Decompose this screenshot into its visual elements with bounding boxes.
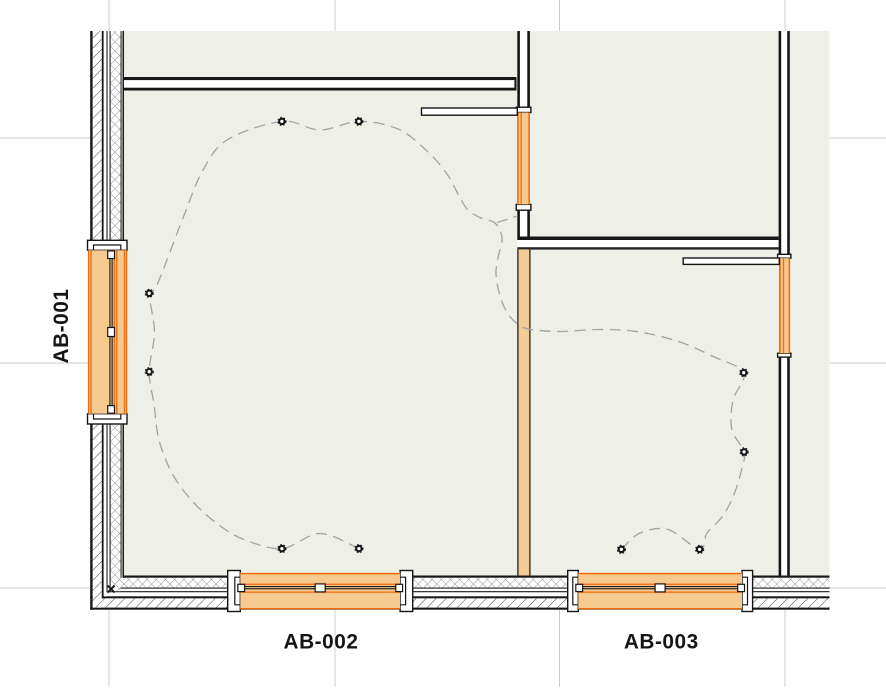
svg-text:AB-003: AB-003: [624, 631, 699, 654]
svg-text:AB-001: AB-001: [50, 289, 73, 364]
svg-text:AB-002: AB-002: [284, 631, 359, 654]
